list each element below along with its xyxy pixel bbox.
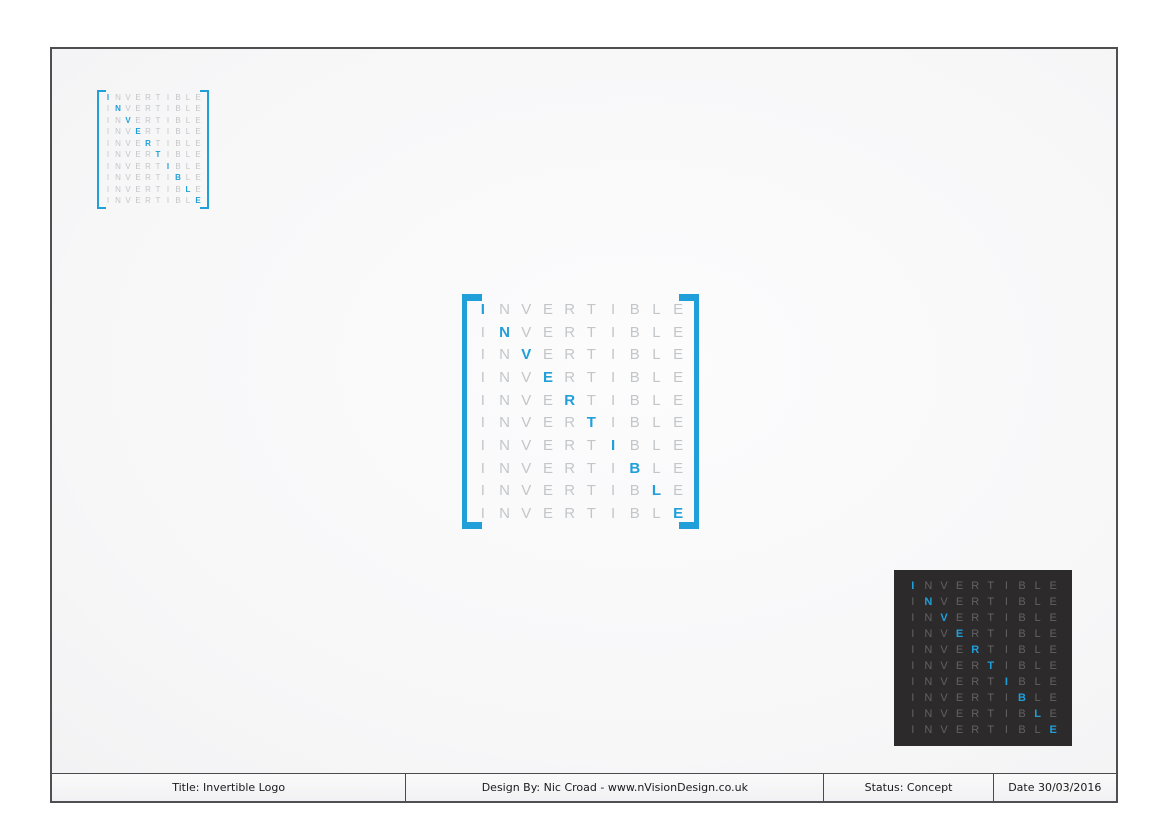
logo-word-row: INVERTIBLE — [905, 661, 1061, 672]
logo-letter: E — [1050, 629, 1057, 640]
logo-letter: T — [156, 186, 161, 194]
logo-letter: V — [521, 483, 531, 498]
logo-word-row: INVERTIBLE — [103, 186, 203, 194]
logo-letter: L — [652, 461, 660, 476]
logo-letter: I — [1005, 581, 1008, 592]
logo-letter: E — [543, 302, 553, 317]
logo-word-row: INVERTIBLE — [103, 197, 203, 205]
logo-letter: B — [175, 117, 180, 125]
logo-letter: R — [971, 661, 979, 672]
logo-letter: L — [1035, 645, 1041, 656]
logo-letter: B — [1018, 677, 1025, 688]
logo-letter-accent: E — [956, 629, 963, 640]
logo-word-row: INVERTIBLE — [103, 151, 203, 159]
logo-letter: I — [911, 709, 914, 720]
logo-word-row: INVERTIBLE — [472, 302, 689, 317]
logo-letter: V — [125, 186, 130, 194]
logo-letter: V — [521, 302, 531, 317]
logo-letter: B — [175, 94, 180, 102]
logo-letter: E — [1050, 709, 1057, 720]
logo-word-row: INVERTIBLE — [905, 693, 1061, 704]
logo-letter: I — [167, 174, 169, 182]
logo-letter: E — [543, 461, 553, 476]
logo-letter: I — [1005, 645, 1008, 656]
logo-letter: N — [499, 438, 510, 453]
logo-letter: V — [125, 163, 130, 171]
logo-letter: I — [911, 645, 914, 656]
logo-letter: I — [911, 693, 914, 704]
logo-letter: I — [611, 347, 615, 362]
logo-letter: N — [115, 128, 121, 136]
logo-letter: E — [543, 483, 553, 498]
logo-letter: I — [107, 105, 109, 113]
logo-letter: B — [175, 140, 180, 148]
logo-letter: B — [175, 128, 180, 136]
logo-letter: T — [156, 140, 161, 148]
logo-letter: B — [630, 302, 640, 317]
logo-letter-accent: R — [971, 645, 979, 656]
logo-letter: R — [145, 117, 151, 125]
logo-letter-accent: N — [924, 597, 932, 608]
logo-letter: E — [543, 415, 553, 430]
logo-letter: V — [940, 677, 947, 688]
logo-letter: N — [924, 645, 932, 656]
logo-letter: L — [186, 151, 190, 159]
logo-letter: L — [186, 197, 190, 205]
logo-letter: E — [543, 393, 553, 408]
logo-word-row: INVERTIBLE — [905, 645, 1061, 656]
logo-letter: I — [481, 370, 485, 385]
logo-letter: E — [135, 105, 140, 113]
logo-letter-accent: E — [543, 370, 553, 385]
logo-letter: B — [1018, 613, 1025, 624]
invertible-letter-grid: INVERTIBLEINVERTIBLEINVERTIBLEINVERTIBLE… — [103, 92, 203, 207]
logo-letter: T — [987, 677, 994, 688]
logo-letter: R — [145, 151, 151, 159]
logo-letter: I — [107, 197, 109, 205]
logo-letter: E — [135, 151, 140, 159]
logo-letter: I — [481, 393, 485, 408]
logo-letter: T — [587, 393, 596, 408]
logo-letter: L — [186, 174, 190, 182]
logo-letter: I — [911, 677, 914, 688]
logo-letter: I — [911, 613, 914, 624]
logo-word-row: INVERTIBLE — [472, 325, 689, 340]
logo-letter-accent: T — [987, 661, 994, 672]
logo-letter-accent: R — [564, 393, 575, 408]
logo-letter: T — [987, 709, 994, 720]
logo-word-row: INVERTIBLE — [103, 128, 203, 136]
logo-letter-accent: E — [1050, 725, 1057, 736]
logo-letter: N — [115, 94, 121, 102]
logo-letter: E — [1050, 677, 1057, 688]
logo-word-row: INVERTIBLE — [103, 140, 203, 148]
logo-letter: I — [167, 128, 169, 136]
logo-letter: V — [940, 581, 947, 592]
logo-letter: L — [652, 302, 660, 317]
logo-letter: B — [630, 393, 640, 408]
logo-letter: I — [611, 461, 615, 476]
logo-letter: E — [956, 597, 963, 608]
design-canvas: INVERTIBLEINVERTIBLEINVERTIBLEINVERTIBLE… — [0, 0, 1169, 827]
logo-letter: N — [924, 693, 932, 704]
logo-letter: I — [107, 151, 109, 159]
logo-letter: T — [587, 347, 596, 362]
logo-letter: I — [481, 347, 485, 362]
logo-letter: N — [115, 151, 121, 159]
logo-letter-accent: E — [135, 128, 140, 136]
logo-letter: T — [587, 506, 596, 521]
logo-letter: V — [521, 506, 531, 521]
logo-letter: T — [587, 325, 596, 340]
logo-letter-accent: V — [125, 117, 130, 125]
logo-letter: T — [156, 117, 161, 125]
logo-letter-accent: B — [629, 461, 640, 476]
logo-letter: I — [481, 506, 485, 521]
logo-letter: R — [145, 128, 151, 136]
logo-letter: R — [971, 725, 979, 736]
logo-letter: N — [499, 347, 510, 362]
logo-word-row: INVERTIBLE — [103, 163, 203, 171]
logo-letter: N — [924, 725, 932, 736]
logo-letter: I — [611, 483, 615, 498]
logo-letter: R — [971, 629, 979, 640]
logo-letter: I — [1005, 709, 1008, 720]
logo-letter: L — [186, 94, 190, 102]
logo-letter: I — [1005, 661, 1008, 672]
logo-letter: V — [940, 597, 947, 608]
invertible-letter-grid: INVERTIBLEINVERTIBLEINVERTIBLEINVERTIBLE… — [905, 578, 1061, 738]
logo-letter: N — [115, 163, 121, 171]
logo-letter: V — [521, 393, 531, 408]
logo-letter: B — [1018, 597, 1025, 608]
designer-field: Design By: Nic Croad - www.nVisionDesign… — [406, 774, 824, 801]
logo-letter: R — [564, 325, 575, 340]
logo-letter: L — [652, 438, 660, 453]
logo-letter: I — [911, 629, 914, 640]
logo-letter: N — [499, 415, 510, 430]
logo-letter: B — [630, 347, 640, 362]
logo-letter-accent: L — [1034, 709, 1041, 720]
logo-letter: I — [1005, 629, 1008, 640]
logo-letter-accent: I — [911, 581, 914, 592]
logo-letter: T — [987, 693, 994, 704]
logo-letter: T — [587, 302, 596, 317]
logo-letter-accent: N — [115, 105, 121, 113]
logo-letter-accent: I — [481, 302, 485, 317]
logo-letter: B — [1018, 629, 1025, 640]
logo-letter: N — [115, 140, 121, 148]
logo-letter: L — [652, 393, 660, 408]
logo-letter: V — [521, 461, 531, 476]
logo-letter: L — [186, 105, 190, 113]
logo-letter: I — [481, 415, 485, 430]
logo-letter: V — [940, 629, 947, 640]
logo-letter: E — [1050, 693, 1057, 704]
logo-letter: V — [125, 105, 130, 113]
logo-letter: N — [115, 186, 121, 194]
logo-letter: B — [175, 186, 180, 194]
logo-letter: T — [156, 105, 161, 113]
logo-letter: I — [107, 117, 109, 125]
logo-letter: R — [971, 693, 979, 704]
logo-letter: V — [521, 325, 531, 340]
logo-letter: E — [956, 709, 963, 720]
logo-letter: R — [971, 597, 979, 608]
logo-word-row: INVERTIBLE — [472, 483, 689, 498]
logo-word-row: INVERTIBLE — [103, 94, 203, 102]
logo-letter: E — [135, 117, 140, 125]
logo-letter: V — [125, 94, 130, 102]
logo-letter: E — [956, 581, 963, 592]
logo-letter: I — [911, 661, 914, 672]
logo-letter: L — [1035, 629, 1041, 640]
logo-letter: R — [564, 415, 575, 430]
logo-letter: I — [1005, 613, 1008, 624]
logo-letter-accent: R — [145, 140, 151, 148]
logo-letter: R — [564, 438, 575, 453]
logo-letter: I — [107, 140, 109, 148]
logo-letter: I — [481, 483, 485, 498]
logo-letter: E — [956, 693, 963, 704]
logo-letter: T — [987, 581, 994, 592]
logo-word-row: INVERTIBLE — [905, 629, 1061, 640]
logo-letter: I — [611, 370, 615, 385]
logo-word-row: INVERTIBLE — [905, 613, 1061, 624]
logo-letter: E — [135, 174, 140, 182]
logo-letter: I — [611, 415, 615, 430]
logo-letter: T — [156, 197, 161, 205]
logo-letter: E — [956, 645, 963, 656]
logo-letter: R — [971, 613, 979, 624]
logo-variant-large-light: INVERTIBLEINVERTIBLEINVERTIBLEINVERTIBLE… — [462, 294, 699, 529]
logo-letter: E — [543, 506, 553, 521]
logo-letter-accent: I — [167, 163, 169, 171]
logo-letter: E — [1050, 597, 1057, 608]
logo-letter: R — [564, 347, 575, 362]
logo-letter: I — [107, 163, 109, 171]
logo-letter: L — [652, 506, 660, 521]
logo-letter: V — [125, 197, 130, 205]
logo-letter: R — [564, 302, 575, 317]
logo-letter: I — [167, 197, 169, 205]
logo-word-row: INVERTIBLE — [103, 174, 203, 182]
logo-letter: B — [175, 151, 180, 159]
logo-letter: B — [1018, 661, 1025, 672]
logo-letter: T — [587, 483, 596, 498]
logo-letter: B — [1018, 581, 1025, 592]
logo-letter: E — [1050, 645, 1057, 656]
logo-letter: B — [1018, 645, 1025, 656]
logo-letter: R — [145, 197, 151, 205]
logo-letter: I — [1005, 693, 1008, 704]
logo-letter-accent: L — [186, 186, 191, 194]
logo-letter: T — [987, 597, 994, 608]
logo-letter: R — [564, 483, 575, 498]
logo-letter: V — [940, 709, 947, 720]
logo-letter: I — [611, 393, 615, 408]
logo-variant-dark: INVERTIBLEINVERTIBLEINVERTIBLEINVERTIBLE… — [894, 570, 1072, 746]
logo-letter: B — [1018, 709, 1025, 720]
logo-word-row: INVERTIBLE — [472, 415, 689, 430]
logo-letter: T — [156, 94, 161, 102]
concept-sheet: INVERTIBLEINVERTIBLEINVERTIBLEINVERTIBLE… — [50, 47, 1118, 803]
logo-letter: L — [1035, 725, 1041, 736]
logo-word-row: INVERTIBLE — [905, 581, 1061, 592]
logo-letter: R — [145, 174, 151, 182]
logo-letter: E — [956, 613, 963, 624]
logo-letter: N — [499, 461, 510, 476]
logo-letter: N — [499, 506, 510, 521]
logo-letter: T — [987, 629, 994, 640]
logo-letter: N — [924, 613, 932, 624]
logo-letter: N — [924, 709, 932, 720]
logo-letter: R — [971, 677, 979, 688]
logo-letter: N — [499, 483, 510, 498]
date-field: Date 30/03/2016 — [994, 774, 1116, 801]
logo-letter: T — [587, 461, 596, 476]
logo-letter: I — [611, 325, 615, 340]
logo-letter: V — [940, 725, 947, 736]
logo-letter: I — [167, 151, 169, 159]
logo-letter-accent: B — [175, 174, 181, 182]
logo-letter: I — [167, 186, 169, 194]
logo-letter: N — [924, 629, 932, 640]
logo-word-row: INVERTIBLE — [472, 393, 689, 408]
logo-letter: I — [167, 117, 169, 125]
logo-letter: B — [175, 105, 180, 113]
logo-letter: I — [107, 174, 109, 182]
logo-letter-accent: N — [499, 325, 510, 340]
logo-letter: V — [940, 645, 947, 656]
logo-letter: R — [145, 105, 151, 113]
logo-letter: T — [156, 163, 161, 171]
logo-letter: N — [924, 581, 932, 592]
logo-letter: L — [1035, 581, 1041, 592]
logo-letter: E — [135, 94, 140, 102]
logo-letter: T — [587, 438, 596, 453]
logo-letter: T — [987, 725, 994, 736]
logo-letter: I — [1005, 597, 1008, 608]
logo-letter: V — [940, 661, 947, 672]
logo-letter-accent: T — [156, 151, 161, 159]
logo-letter: N — [115, 197, 121, 205]
logo-letter: V — [521, 415, 531, 430]
logo-letter: R — [145, 163, 151, 171]
logo-letter: B — [1018, 725, 1025, 736]
logo-letter: I — [481, 438, 485, 453]
logo-letter: T — [987, 613, 994, 624]
logo-letter: I — [167, 94, 169, 102]
logo-word-row: INVERTIBLE — [472, 347, 689, 362]
logo-letter: B — [630, 438, 640, 453]
logo-letter: E — [135, 186, 140, 194]
logo-letter: T — [987, 645, 994, 656]
logo-letter: I — [167, 140, 169, 148]
logo-letter: N — [499, 370, 510, 385]
logo-word-row: INVERTIBLE — [905, 677, 1061, 688]
logo-letter-accent: T — [587, 415, 596, 430]
logo-letter: B — [630, 325, 640, 340]
logo-letter: E — [135, 197, 140, 205]
logo-word-row: INVERTIBLE — [905, 709, 1061, 720]
status-field: Status: Concept — [824, 774, 993, 801]
logo-letter: I — [481, 461, 485, 476]
right-bracket-icon — [200, 90, 209, 209]
logo-letter-accent: I — [1005, 677, 1008, 688]
logo-word-row: INVERTIBLE — [472, 438, 689, 453]
logo-letter: E — [543, 347, 553, 362]
logo-letter: I — [911, 597, 914, 608]
logo-word-row: INVERTIBLE — [472, 461, 689, 476]
logo-letter: L — [186, 128, 190, 136]
logo-word-row: INVERTIBLE — [472, 370, 689, 385]
logo-letter-accent: B — [1018, 693, 1026, 704]
logo-letter: N — [499, 393, 510, 408]
right-bracket-icon — [679, 294, 699, 529]
logo-letter: I — [107, 128, 109, 136]
logo-letter: E — [1050, 581, 1057, 592]
logo-word-row: INVERTIBLE — [905, 725, 1061, 736]
title-block: Title: Invertible Logo Design By: Nic Cr… — [52, 773, 1116, 801]
logo-letter: V — [125, 140, 130, 148]
logo-letter: E — [543, 325, 553, 340]
logo-letter: R — [564, 461, 575, 476]
logo-letter: T — [156, 128, 161, 136]
logo-letter: L — [186, 117, 190, 125]
title-field: Title: Invertible Logo — [52, 774, 406, 801]
logo-letter: V — [125, 174, 130, 182]
logo-letter: N — [924, 677, 932, 688]
logo-letter-accent: I — [611, 438, 615, 453]
logo-letter-accent: V — [940, 613, 947, 624]
logo-letter: L — [186, 140, 190, 148]
logo-letter-accent: L — [652, 483, 661, 498]
logo-letter: B — [175, 197, 180, 205]
logo-letter: L — [652, 347, 660, 362]
logo-letter: I — [1005, 725, 1008, 736]
logo-word-row: INVERTIBLE — [472, 506, 689, 521]
logo-letter: I — [611, 302, 615, 317]
logo-letter: T — [587, 370, 596, 385]
logo-letter: L — [1035, 613, 1041, 624]
logo-letter: L — [186, 163, 190, 171]
logo-letter: E — [1050, 613, 1057, 624]
logo-letter: N — [115, 174, 121, 182]
logo-letter: V — [125, 128, 130, 136]
logo-letter: I — [611, 506, 615, 521]
logo-letter: B — [630, 370, 640, 385]
logo-letter: B — [630, 415, 640, 430]
logo-word-row: INVERTIBLE — [103, 117, 203, 125]
logo-letter: L — [1035, 597, 1041, 608]
logo-letter: I — [167, 105, 169, 113]
logo-letter: V — [521, 438, 531, 453]
logo-letter: L — [652, 415, 660, 430]
invertible-letter-grid: INVERTIBLEINVERTIBLEINVERTIBLEINVERTIBLE… — [472, 298, 689, 525]
logo-letter: E — [135, 140, 140, 148]
logo-letter: E — [1050, 661, 1057, 672]
logo-word-row: INVERTIBLE — [103, 105, 203, 113]
logo-letter: N — [924, 661, 932, 672]
logo-letter: R — [145, 186, 151, 194]
logo-letter: E — [543, 438, 553, 453]
logo-letter-accent: V — [521, 347, 531, 362]
logo-letter: B — [630, 483, 640, 498]
logo-letter: L — [652, 370, 660, 385]
logo-letter: V — [125, 151, 130, 159]
logo-letter: R — [564, 370, 575, 385]
